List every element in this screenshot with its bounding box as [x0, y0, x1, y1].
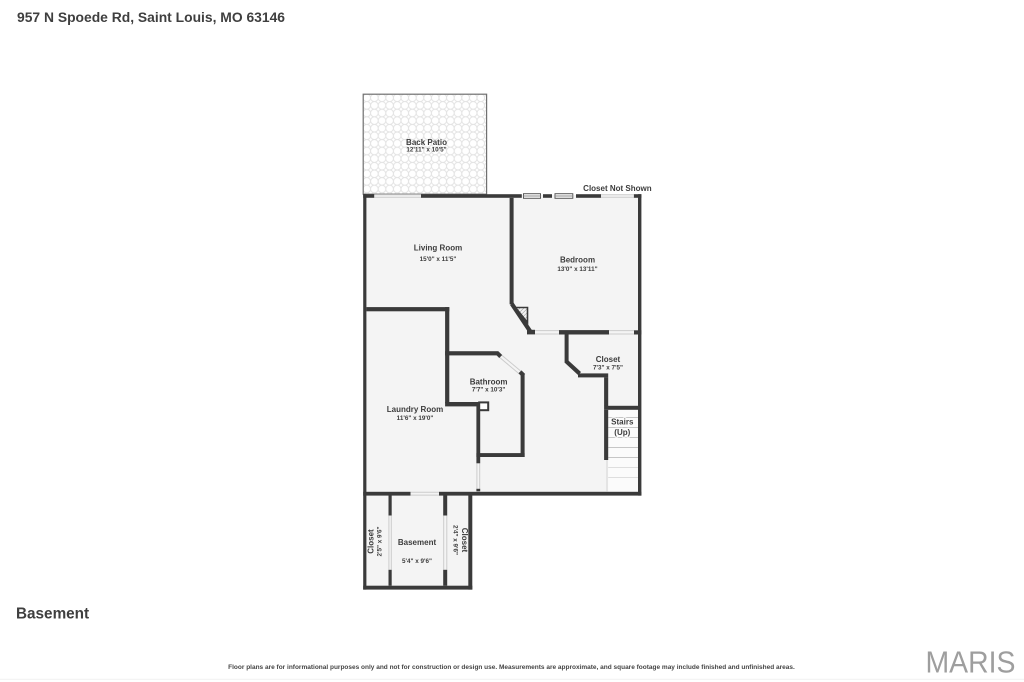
svg-text:15'0" x 11'5": 15'0" x 11'5" [420, 256, 457, 263]
svg-text:Bathroom: Bathroom [470, 378, 508, 387]
svg-text:Closet Not Shown: Closet Not Shown [583, 184, 652, 193]
svg-text:Closet: Closet [596, 355, 621, 364]
svg-text:(Up): (Up) [614, 428, 630, 437]
svg-text:5'4" x 9'6": 5'4" x 9'6" [402, 558, 432, 565]
svg-text:Basement: Basement [16, 606, 89, 623]
svg-text:Basement: Basement [398, 538, 437, 547]
svg-text:12'11" x 10'5": 12'11" x 10'5" [406, 147, 446, 154]
svg-text:Floor plans are for informatio: Floor plans are for informational purpos… [228, 664, 795, 671]
svg-text:Stairs: Stairs [611, 418, 634, 427]
svg-text:Living Room: Living Room [414, 244, 462, 253]
svg-text:2'4" x 9'6": 2'4" x 9'6" [452, 525, 459, 555]
svg-text:957 N Spoede Rd, Saint Louis,: 957 N Spoede Rd, Saint Louis, MO 63146 [17, 10, 285, 26]
svg-text:7'7" x 10'3": 7'7" x 10'3" [472, 387, 505, 394]
svg-text:13'0" x 13'11": 13'0" x 13'11" [557, 266, 597, 273]
svg-text:MARIS: MARIS [926, 645, 1016, 680]
svg-text:Laundry Room: Laundry Room [387, 405, 443, 414]
svg-text:11'6" x 19'0": 11'6" x 19'0" [397, 415, 434, 422]
svg-text:Closet: Closet [460, 528, 469, 553]
svg-text:Back Patio: Back Patio [406, 138, 447, 147]
svg-text:7'3" x 7'5": 7'3" x 7'5" [593, 365, 623, 372]
svg-text:2'5" x 9'6": 2'5" x 9'6" [377, 527, 384, 557]
svg-text:Closet: Closet [367, 529, 376, 554]
svg-text:Bedroom: Bedroom [560, 255, 595, 264]
